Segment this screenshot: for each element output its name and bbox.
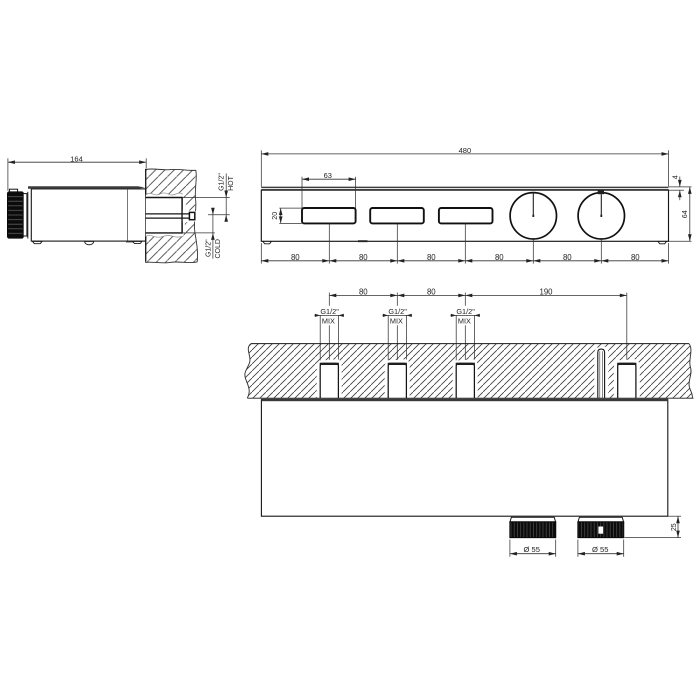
svg-text:Ø 55: Ø 55 [523, 545, 539, 554]
svg-text:25: 25 [671, 523, 678, 531]
svg-text:80: 80 [427, 288, 436, 297]
svg-text:80: 80 [495, 253, 504, 262]
svg-text:MIX: MIX [322, 316, 335, 325]
svg-text:80: 80 [359, 288, 368, 297]
svg-text:G1/2": G1/2" [219, 173, 226, 191]
svg-text:Ø 55: Ø 55 [592, 545, 608, 554]
svg-text:4: 4 [670, 175, 679, 179]
svg-text:20: 20 [270, 212, 279, 220]
svg-text:MIX: MIX [390, 316, 403, 325]
svg-text:63: 63 [324, 171, 332, 180]
svg-text:G1/2": G1/2" [388, 307, 407, 316]
svg-text:80: 80 [631, 253, 640, 262]
svg-text:HOT: HOT [228, 175, 235, 191]
svg-text:80: 80 [563, 253, 572, 262]
svg-text:MIX: MIX [458, 316, 471, 325]
svg-text:64: 64 [680, 210, 689, 218]
svg-text:80: 80 [427, 253, 436, 262]
svg-text:80: 80 [359, 253, 368, 262]
svg-text:G1/2": G1/2" [456, 307, 475, 316]
svg-text:190: 190 [539, 288, 553, 297]
svg-text:480: 480 [459, 146, 472, 155]
svg-text:80: 80 [291, 253, 300, 262]
svg-text:G1/2": G1/2" [205, 239, 212, 257]
svg-text:COLD: COLD [215, 239, 222, 258]
svg-text:164: 164 [70, 154, 83, 163]
svg-text:G1/2": G1/2" [320, 307, 339, 316]
